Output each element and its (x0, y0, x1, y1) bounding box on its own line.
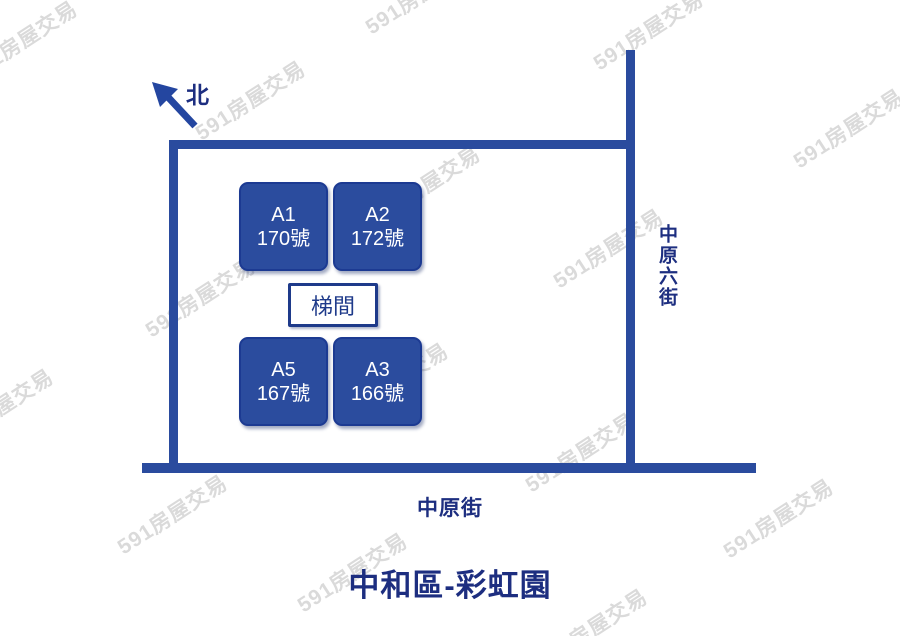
watermark: 591房屋交易 (587, 0, 709, 77)
street-line-horizontal (142, 463, 756, 473)
unit-id: A3 (365, 358, 389, 382)
unit-box-a5: A5 167號 (239, 337, 328, 426)
unit-id: A1 (271, 203, 295, 227)
street-line-vertical (626, 50, 635, 473)
watermark: 591房屋交易 (717, 471, 839, 565)
compass: 北 (146, 74, 256, 134)
unit-number: 170號 (257, 227, 310, 251)
unit-id: A2 (365, 203, 389, 227)
unit-number: 166號 (351, 382, 404, 406)
street-name-bottom: 中原街 (417, 492, 483, 522)
watermark: 591房屋交易 (0, 0, 83, 87)
unit-box-a2: A2 172號 (333, 182, 422, 271)
unit-number: 167號 (257, 382, 310, 406)
watermark: 591房屋交易 (787, 81, 900, 175)
site-plan-diagram: 591房屋交易 591房屋交易 591房屋交易 591房屋交易 591房屋交易 … (0, 0, 900, 636)
watermark: 591房屋交易 (111, 467, 233, 561)
unit-box-a1: A1 170號 (239, 182, 328, 271)
watermark: 591房屋交易 (0, 361, 59, 455)
stairwell-label: 梯間 (311, 289, 355, 321)
unit-box-a3: A3 166號 (333, 337, 422, 426)
watermark: 591房屋交易 (359, 0, 481, 41)
plan-title: 中和區-彩虹園 (0, 560, 900, 605)
unit-id: A5 (271, 358, 295, 382)
north-label: 北 (186, 76, 209, 110)
unit-number: 172號 (351, 227, 404, 251)
stairwell-box: 梯間 (288, 283, 378, 327)
street-name-vertical: 中原六街 (653, 224, 680, 308)
